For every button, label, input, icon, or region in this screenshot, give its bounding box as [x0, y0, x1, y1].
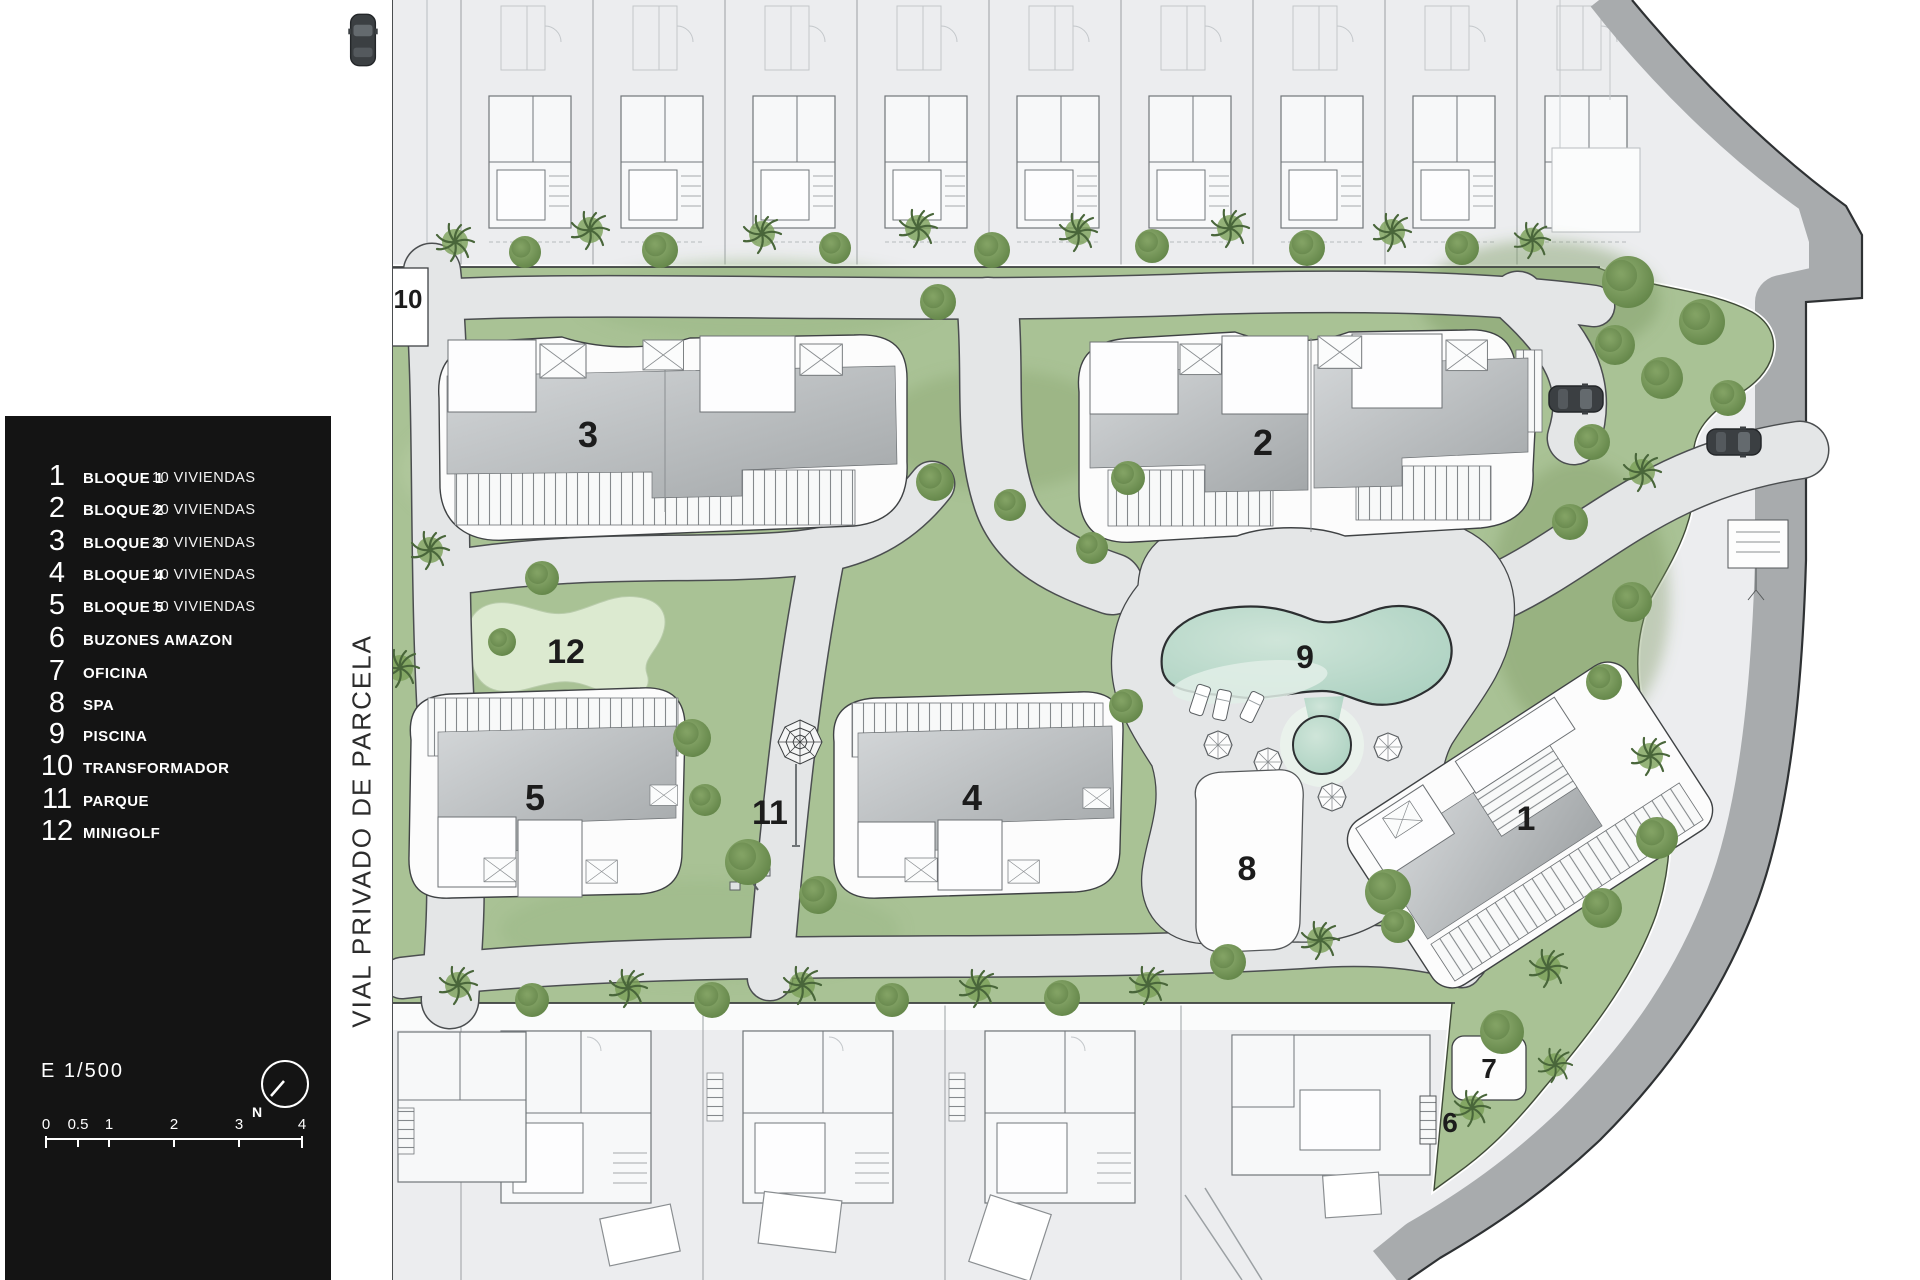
building-3 [439, 335, 907, 540]
piscina-label: 9 [1296, 639, 1314, 675]
buzones-label: 6 [1442, 1107, 1458, 1138]
block-4-label: 4 [962, 777, 982, 818]
legend-item-2: 2BLOQUE 220 VIVIENDAS [5, 493, 331, 525]
legend-item-1: 1BLOQUE 110 VIVIENDAS [5, 461, 331, 493]
scale-tick-3: 3 [235, 1116, 243, 1133]
block-2-label: 2 [1253, 422, 1273, 463]
legend-item-12: 12MINIGOLF [5, 816, 331, 848]
scale-tick-1: 1 [105, 1116, 113, 1133]
legend-item-9: 9PISCINA [5, 719, 331, 751]
north-label: N [252, 1104, 262, 1120]
legend-item-4: 4BLOQUE 410 VIVIENDAS [5, 558, 331, 590]
legend-item-5: 5BLOQUE 510 VIVIENDAS [5, 590, 331, 622]
car-icon [1707, 427, 1761, 458]
block-5-label: 5 [525, 777, 545, 818]
block-3-label: 3 [578, 414, 598, 455]
building-5 [409, 688, 685, 898]
block-1-label: 1 [1517, 800, 1536, 838]
legend-item-7: 7OFICINA [5, 656, 331, 688]
car-icon [341, 4, 385, 78]
lockers-box [1420, 1096, 1436, 1144]
legend-item-8: 8SPA [5, 688, 331, 720]
scale-text: E 1/500 [41, 1060, 124, 1083]
parque-label: 11 [752, 794, 788, 832]
scale-tick-0: 0 [42, 1116, 50, 1133]
minigolf-label: 12 [547, 633, 585, 671]
scale-tick-0-5: 0.5 [68, 1116, 89, 1133]
spa-label: 8 [1238, 850, 1257, 888]
scale-tick-2: 2 [170, 1116, 178, 1133]
legend-panel: 1BLOQUE 110 VIVIENDAS 2BLOQUE 220 VIVIEN… [5, 416, 331, 1280]
legend-item-10: 10TRANSFORMADOR [5, 751, 331, 783]
transformador-label: 10 [394, 284, 423, 314]
site-plan-page: 3 2 5 4 1 9 8 12 11 10 7 6 VIAL PRIVADO … [0, 0, 1920, 1280]
car-icon [1549, 384, 1603, 415]
private-road-strip: VIAL PRIVADO DE PARCELA [331, 0, 393, 1280]
road-name-label: VIAL PRIVADO DE PARCELA [346, 634, 377, 1028]
legend-item-11: 11PARQUE [5, 784, 331, 816]
scale-tick-4: 4 [298, 1116, 306, 1133]
building-2 [1078, 330, 1542, 542]
legend-item-3: 3BLOQUE 320 VIVIENDAS [5, 526, 331, 558]
legend-item-6: 6BUZONES AMAZON [5, 623, 331, 655]
oficina-label: 7 [1481, 1053, 1497, 1084]
north-compass-icon [261, 1060, 309, 1108]
